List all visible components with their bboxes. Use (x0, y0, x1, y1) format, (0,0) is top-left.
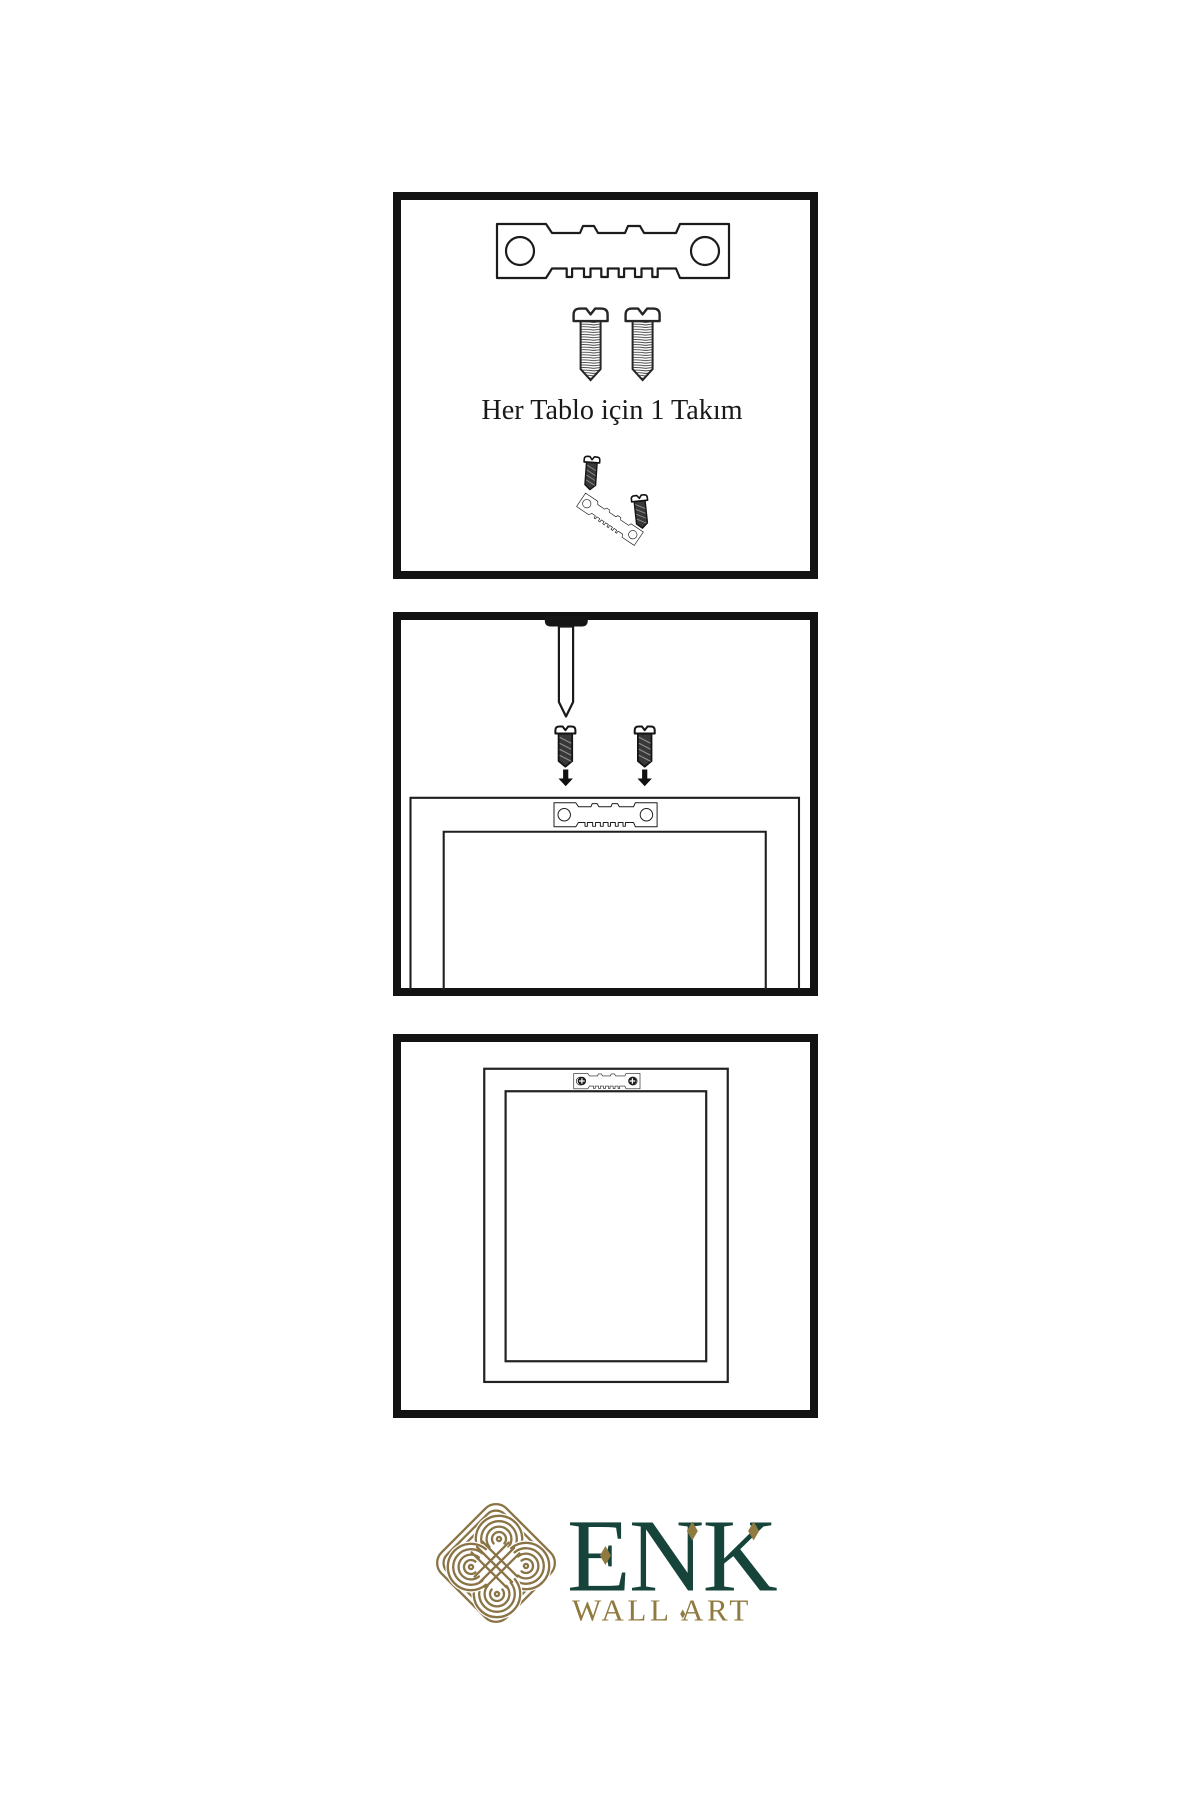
svg-text:WALL ART: WALL ART (572, 1593, 752, 1628)
svg-text:Her Tablo için 1 Takım: Her Tablo için 1 Takım (481, 395, 742, 426)
